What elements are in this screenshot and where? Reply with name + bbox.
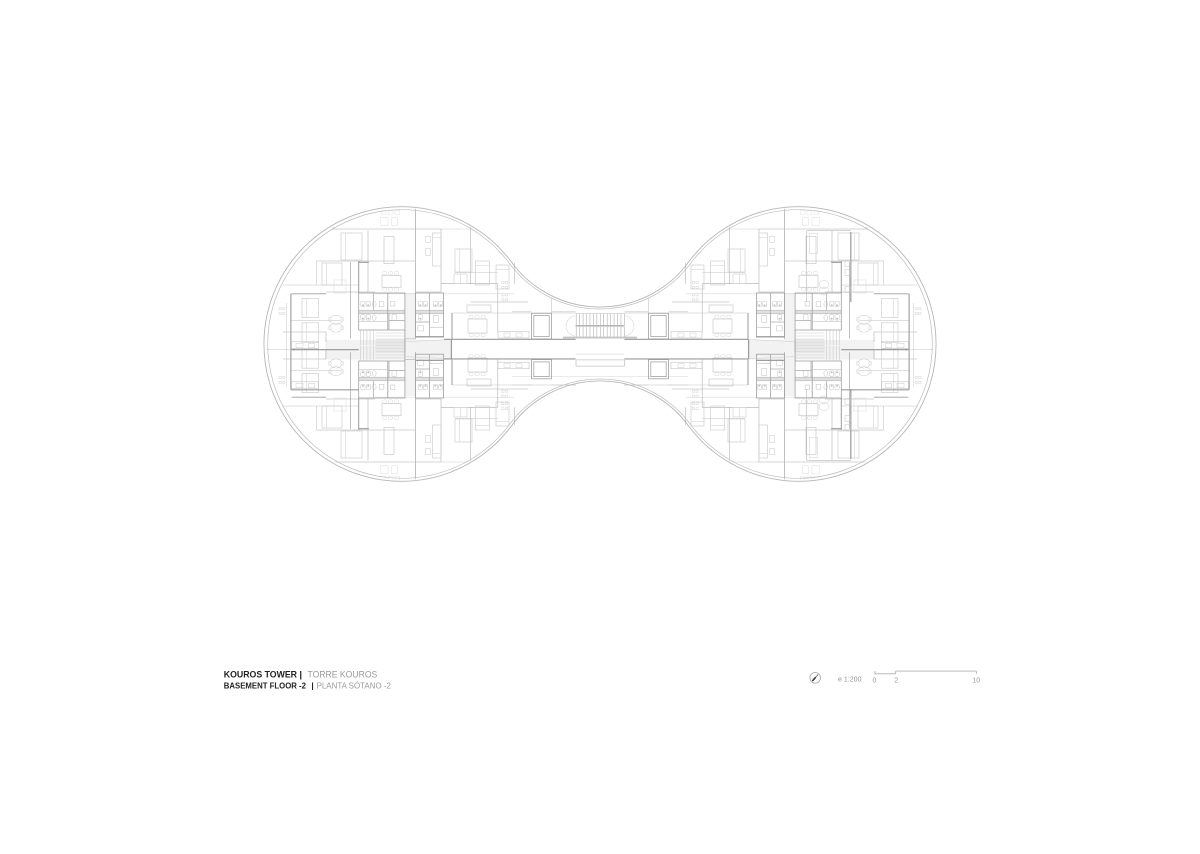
svg-text:PLANTA SÓTANO -2: PLANTA SÓTANO -2 <box>317 681 392 691</box>
svg-text:BASEMENT FLOOR -2: BASEMENT FLOOR -2 <box>224 681 307 691</box>
svg-text:KOUROS TOWER: KOUROS TOWER <box>224 669 297 680</box>
svg-text:|: | <box>299 669 302 680</box>
svg-text:10: 10 <box>972 678 980 685</box>
svg-text:|: | <box>311 681 313 691</box>
svg-text:2: 2 <box>894 678 898 685</box>
svg-text:TORRE KOUROS: TORRE KOUROS <box>308 669 378 680</box>
svg-text:e 1:200: e 1:200 <box>838 674 862 683</box>
svg-text:0: 0 <box>873 678 877 685</box>
